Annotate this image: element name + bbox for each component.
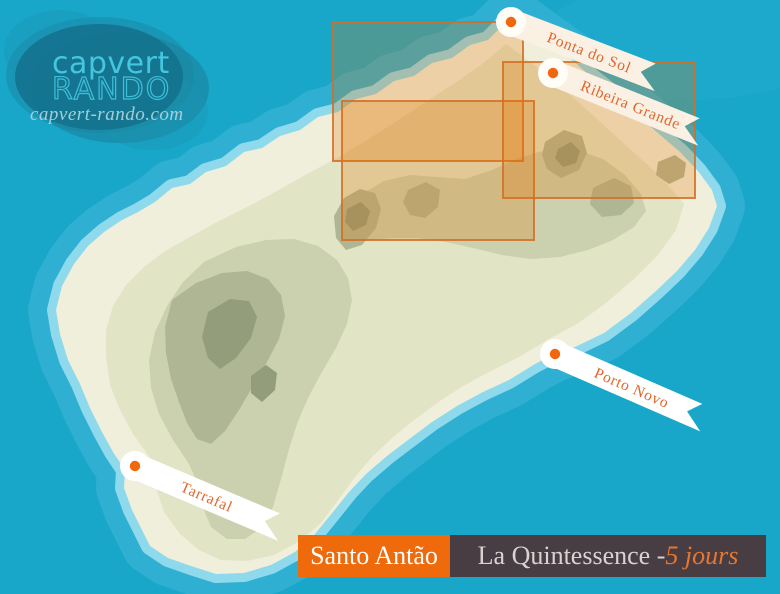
tour-title-text: La Quintessence - xyxy=(478,541,666,571)
island-name-badge: Santo Antão xyxy=(298,535,450,577)
tour-duration-text: 5 jours xyxy=(665,541,738,571)
logo-website-link[interactable]: capvert-rando.com xyxy=(30,104,184,125)
site-logo: capvert RANDO capvert-rando.com xyxy=(0,0,240,170)
island-name-text: Santo Antão xyxy=(310,541,438,571)
logo-graphic: capvert RANDO capvert-rando.com xyxy=(0,0,240,170)
title-banner: Santo Antão La Quintessence - 5 jours xyxy=(298,535,766,577)
map-page: Ponta do Sol Ribeira Grande Porto Novo T… xyxy=(0,0,780,594)
tour-title-badge: La Quintessence - 5 jours xyxy=(450,535,766,577)
logo-brand-line2: RANDO xyxy=(52,72,171,107)
